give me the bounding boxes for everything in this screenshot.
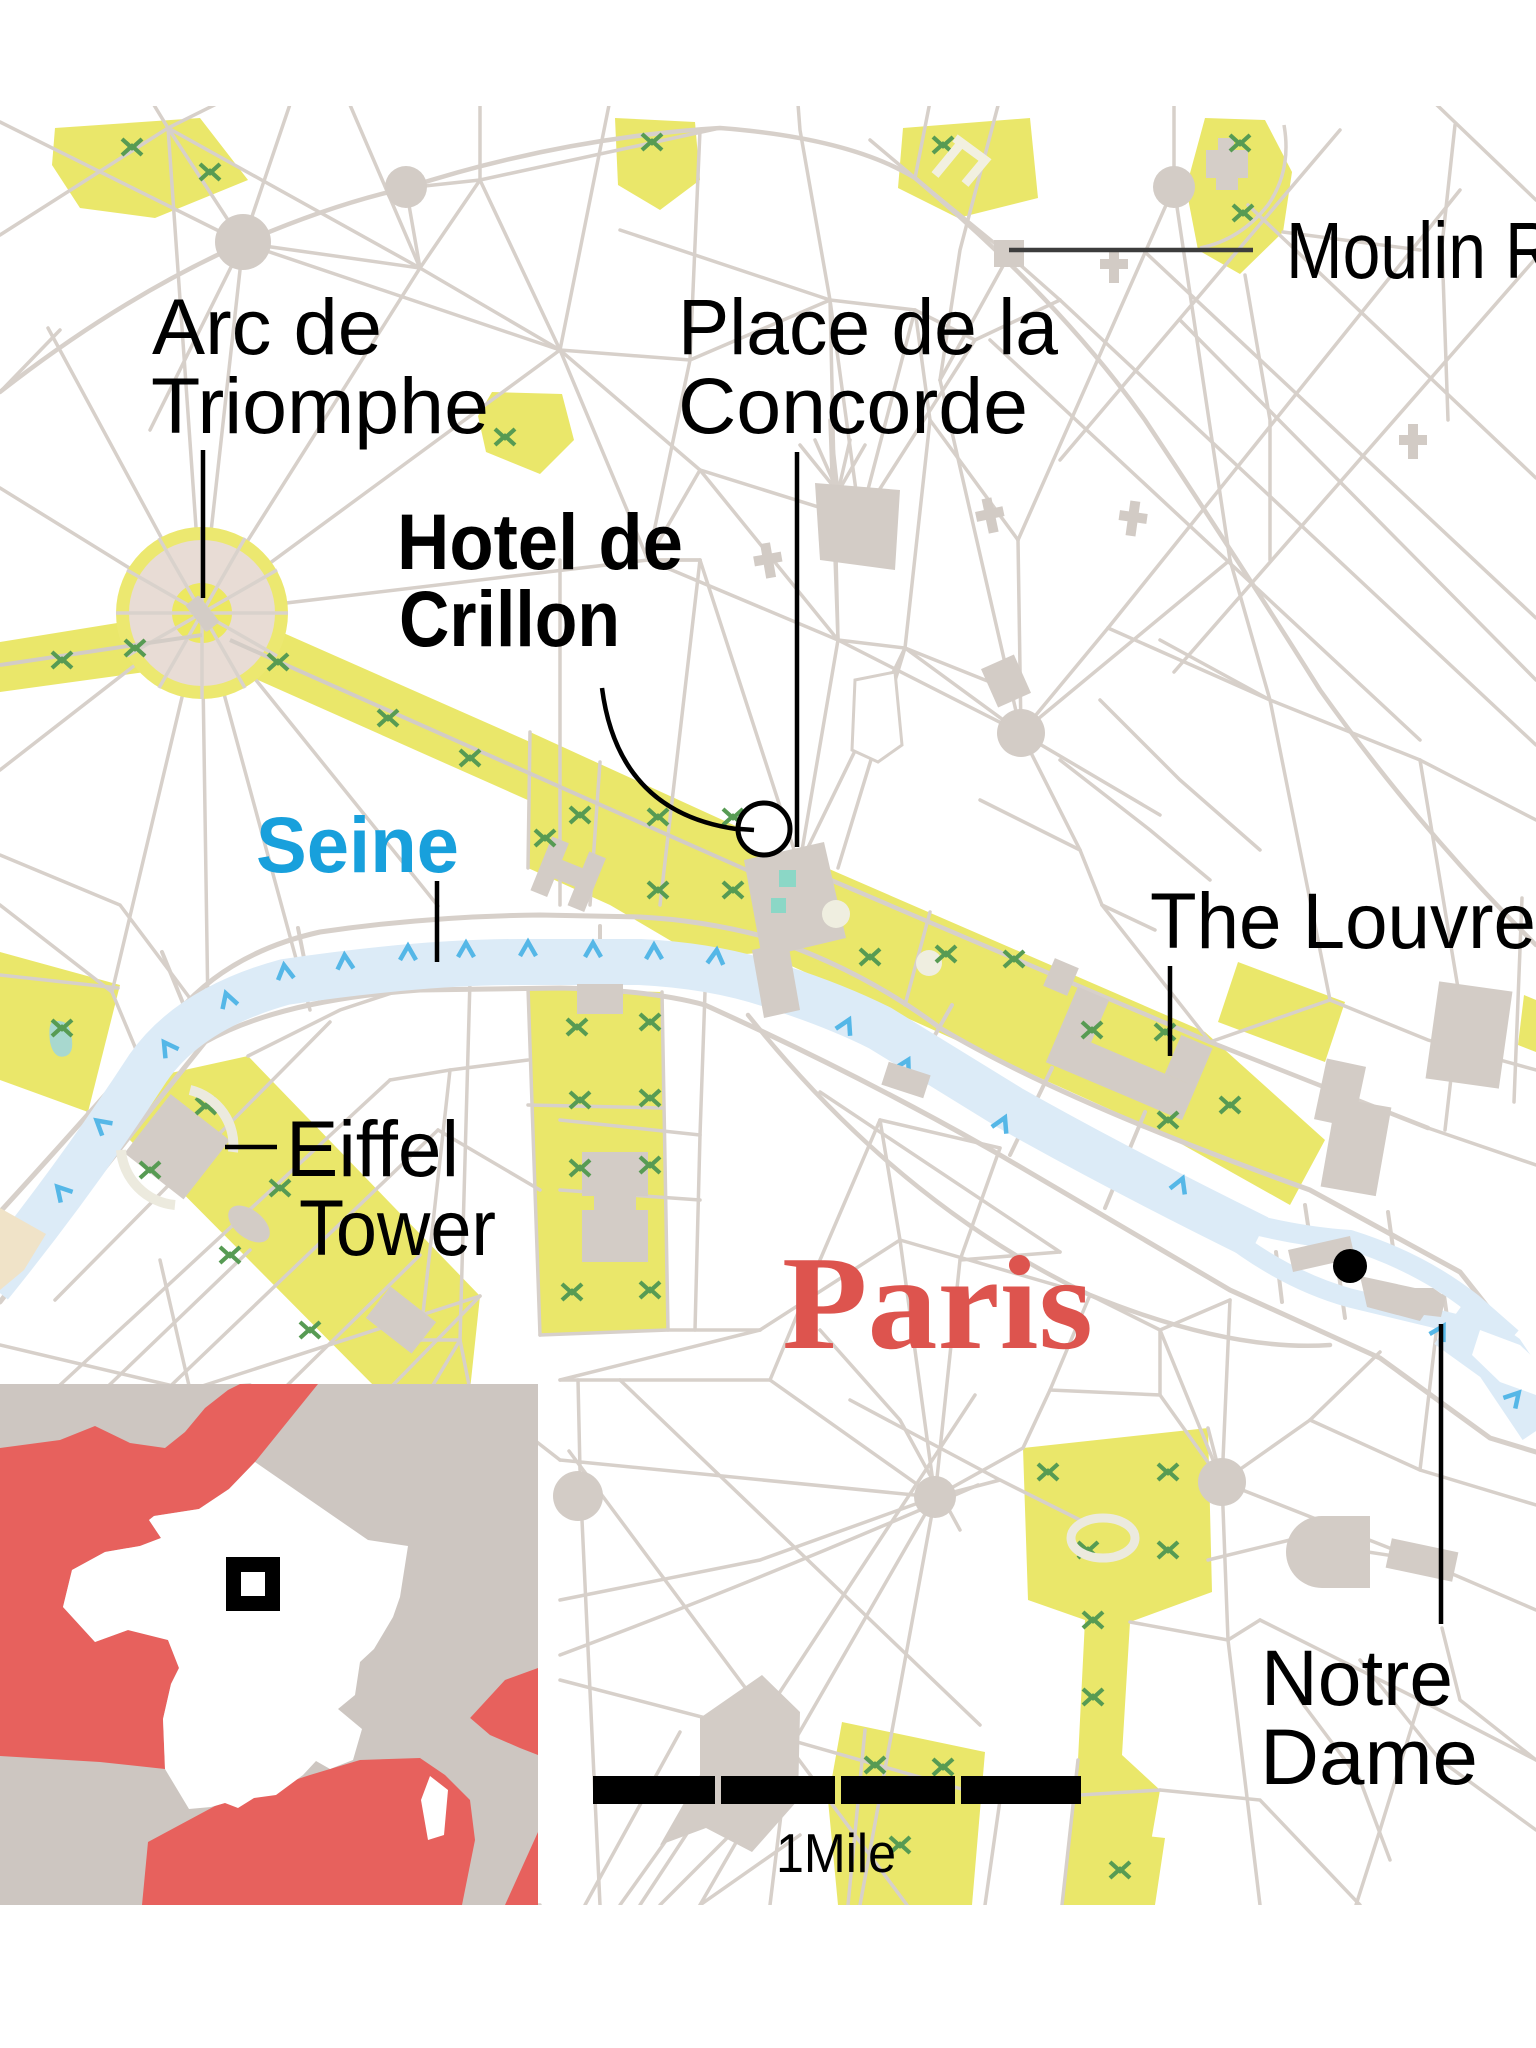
svg-text:Hotel de: Hotel de (397, 497, 683, 586)
svg-text:Crillon: Crillon (399, 574, 620, 663)
svg-text:Concorde: Concorde (678, 361, 1028, 450)
svg-text:Paris: Paris (782, 1229, 1093, 1377)
svg-text:Triomphe: Triomphe (151, 361, 489, 450)
svg-text:Dame: Dame (1260, 1712, 1478, 1801)
svg-text:Arc de: Arc de (152, 282, 382, 371)
svg-text:The Louvre: The Louvre (1150, 876, 1536, 965)
svg-text:Eiffel: Eiffel (286, 1104, 459, 1193)
svg-text:Tower: Tower (299, 1183, 496, 1272)
svg-text:Moulin R: Moulin R (1286, 206, 1536, 295)
svg-text:Place de la: Place de la (678, 282, 1058, 371)
svg-text:1Mile: 1Mile (776, 1822, 896, 1884)
svg-text:Seine: Seine (256, 800, 459, 889)
svg-text:Notre: Notre (1261, 1633, 1453, 1722)
